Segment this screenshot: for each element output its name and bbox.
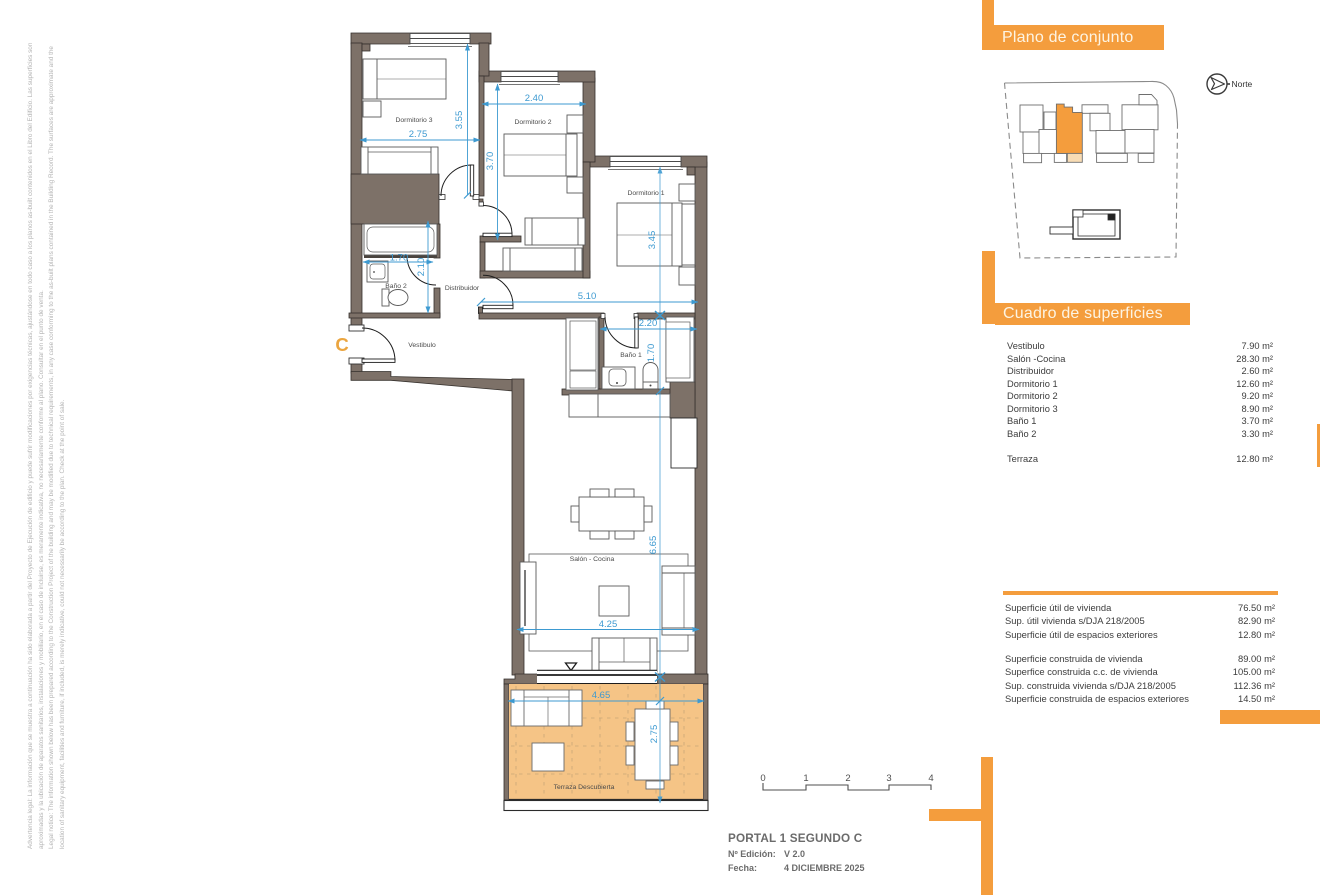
svg-text:Salón - Cocina: Salón - Cocina (570, 556, 615, 563)
svg-text:5.10: 5.10 (578, 291, 597, 302)
svg-text:4: 4 (928, 773, 933, 784)
svg-text:2.20: 2.20 (639, 318, 658, 329)
svg-text:3.55: 3.55 (454, 111, 465, 130)
svg-text:2.40: 2.40 (525, 93, 544, 104)
svg-text:Vestibulo: Vestibulo (408, 342, 436, 349)
svg-text:Norte: Norte (1232, 79, 1253, 89)
svg-text:2.75: 2.75 (649, 725, 660, 744)
svg-text:C: C (335, 334, 348, 355)
svg-text:4.65: 4.65 (592, 690, 611, 701)
svg-text:2.10: 2.10 (416, 258, 427, 277)
svg-text:Dormitorio 2: Dormitorio 2 (514, 119, 551, 126)
svg-text:1: 1 (803, 773, 808, 784)
svg-text:2.75: 2.75 (409, 129, 428, 140)
svg-text:2: 2 (845, 773, 850, 784)
svg-text:1.70: 1.70 (646, 344, 657, 363)
svg-text:Terraza Descubierta: Terraza Descubierta (554, 784, 615, 791)
svg-text:4.25: 4.25 (599, 619, 618, 630)
svg-text:Dormitorio 1: Dormitorio 1 (627, 190, 664, 197)
svg-text:3: 3 (886, 773, 891, 784)
svg-text:Distribuidor: Distribuidor (445, 285, 480, 292)
svg-text:6.65: 6.65 (648, 536, 659, 555)
svg-text:3.70: 3.70 (485, 152, 496, 171)
svg-text:1.70: 1.70 (390, 253, 409, 264)
svg-text:Dormitorio 3: Dormitorio 3 (395, 117, 432, 124)
svg-text:Baño 2: Baño 2 (385, 283, 407, 290)
svg-text:0: 0 (760, 773, 765, 784)
svg-text:Baño 1: Baño 1 (620, 352, 642, 359)
svg-text:3.45: 3.45 (647, 231, 658, 250)
